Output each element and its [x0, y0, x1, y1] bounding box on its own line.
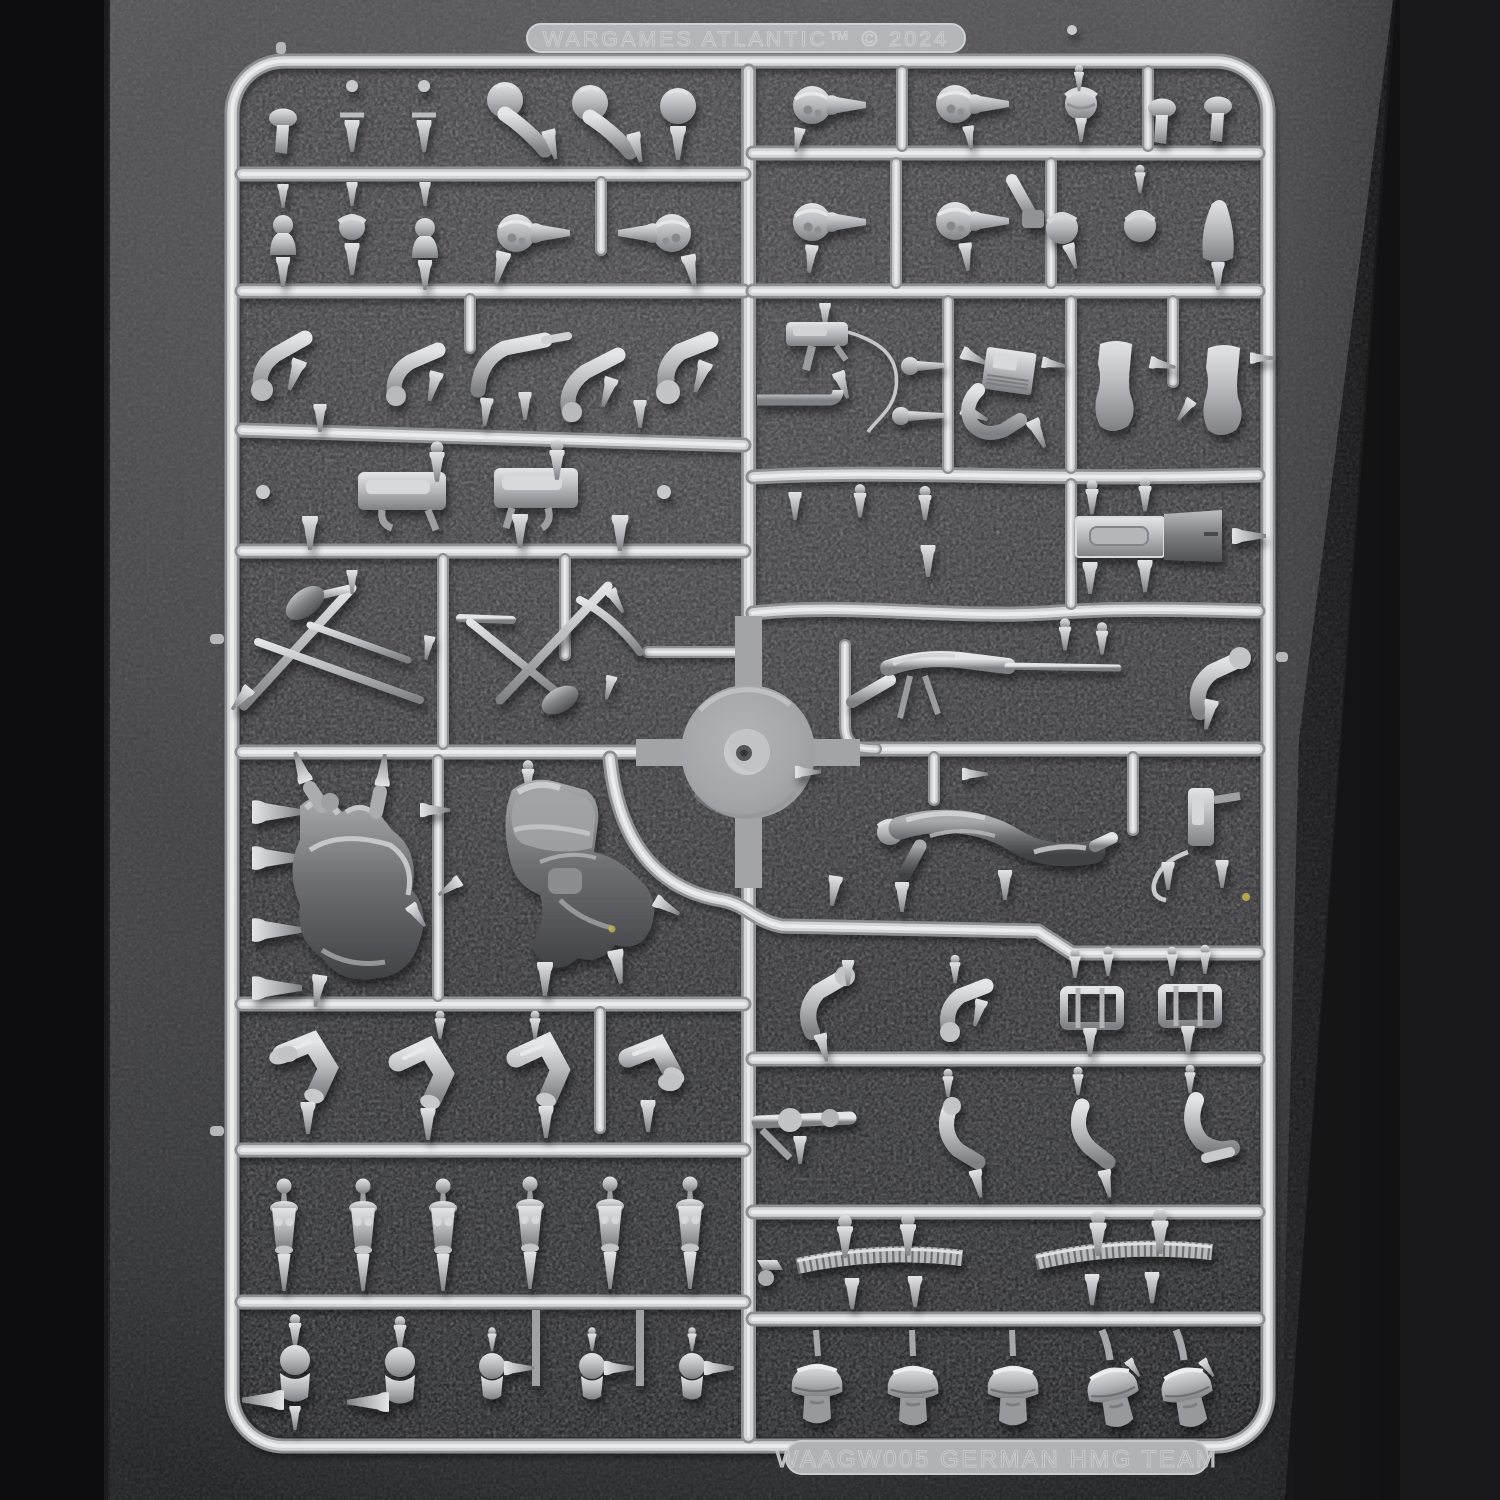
svg-text:WARGAMES ATLANTIC™ © 2024: WARGAMES ATLANTIC™ © 2024 — [543, 27, 949, 51]
svg-text:WAAGW005 GERMAN HMG TEAM: WAAGW005 GERMAN HMG TEAM — [776, 1446, 1219, 1473]
